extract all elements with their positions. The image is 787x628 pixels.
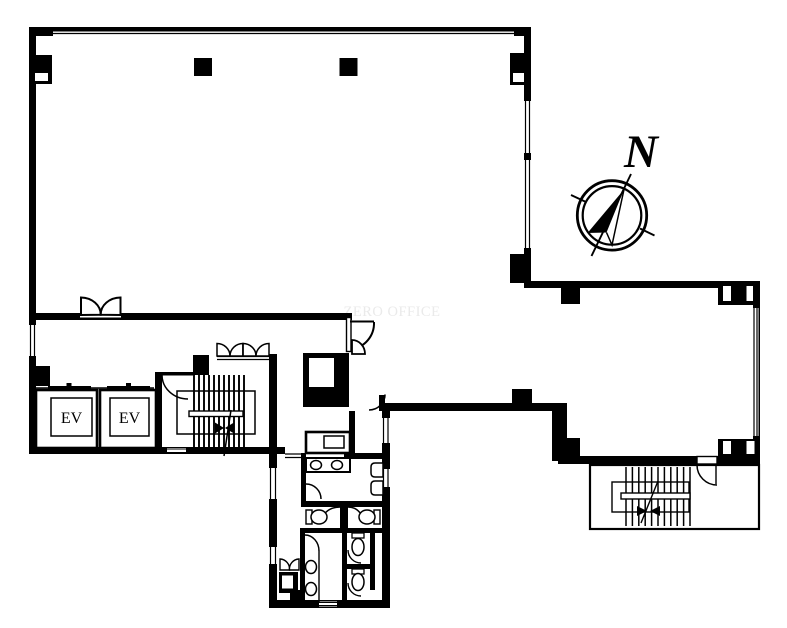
- svg-text:N: N: [623, 126, 660, 178]
- svg-text:EV: EV: [61, 410, 83, 427]
- svg-text:EV: EV: [119, 410, 141, 427]
- svg-text:ZERO OFFICE: ZERO OFFICE: [344, 304, 441, 320]
